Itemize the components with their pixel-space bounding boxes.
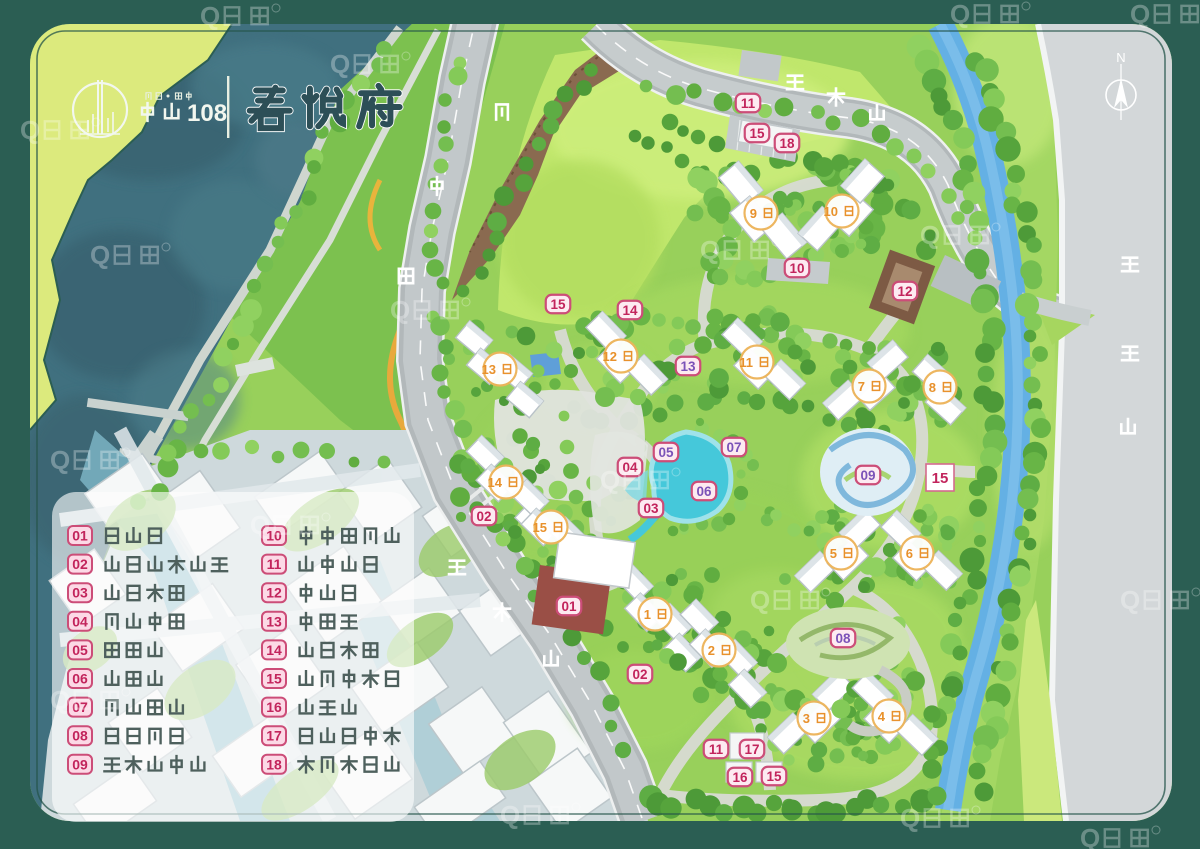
svg-text:9: 9 bbox=[750, 206, 757, 221]
svg-text:07: 07 bbox=[726, 440, 741, 455]
svg-text:Q: Q bbox=[500, 800, 520, 830]
svg-text:4: 4 bbox=[878, 709, 886, 724]
svg-text:Q: Q bbox=[1120, 585, 1140, 615]
svg-text:Q: Q bbox=[50, 445, 70, 475]
svg-text:01: 01 bbox=[561, 599, 577, 614]
svg-text:15: 15 bbox=[550, 297, 566, 312]
svg-text:03: 03 bbox=[72, 585, 88, 601]
svg-text:1: 1 bbox=[644, 607, 651, 622]
svg-text:N: N bbox=[1116, 50, 1125, 65]
svg-text:6: 6 bbox=[906, 546, 913, 561]
svg-text:14: 14 bbox=[622, 303, 638, 318]
svg-text:09: 09 bbox=[72, 756, 88, 772]
svg-text:Q: Q bbox=[1130, 0, 1150, 29]
svg-text:15: 15 bbox=[766, 769, 782, 784]
svg-text:8: 8 bbox=[929, 380, 936, 395]
svg-text:108: 108 bbox=[187, 100, 227, 127]
svg-text:11: 11 bbox=[741, 96, 756, 111]
svg-text:10: 10 bbox=[789, 261, 804, 276]
svg-text:Q: Q bbox=[200, 1, 220, 31]
svg-text:08: 08 bbox=[835, 631, 851, 646]
svg-text:Q: Q bbox=[920, 220, 940, 250]
svg-text:Q: Q bbox=[900, 803, 920, 833]
svg-text:Q: Q bbox=[90, 240, 110, 270]
svg-text:15: 15 bbox=[266, 671, 282, 687]
svg-text:12: 12 bbox=[603, 349, 617, 364]
svg-text:18: 18 bbox=[779, 136, 795, 151]
svg-text:09: 09 bbox=[860, 468, 875, 483]
svg-text:13: 13 bbox=[482, 362, 496, 377]
svg-text:11: 11 bbox=[267, 556, 282, 572]
svg-text:Q: Q bbox=[600, 465, 620, 495]
svg-text:15: 15 bbox=[533, 520, 547, 535]
svg-text:Q: Q bbox=[50, 685, 70, 715]
svg-text:16: 16 bbox=[266, 699, 282, 715]
svg-text:Q: Q bbox=[20, 115, 40, 145]
svg-text:18: 18 bbox=[266, 756, 282, 772]
svg-text:7: 7 bbox=[858, 379, 865, 394]
svg-text:04: 04 bbox=[72, 613, 88, 629]
svg-text:14: 14 bbox=[488, 475, 503, 490]
svg-text:10: 10 bbox=[824, 204, 838, 219]
svg-text:03: 03 bbox=[643, 501, 659, 516]
svg-text:01: 01 bbox=[72, 528, 88, 544]
svg-text:15: 15 bbox=[932, 470, 949, 487]
svg-text:2: 2 bbox=[708, 643, 715, 658]
svg-text:06: 06 bbox=[696, 484, 712, 499]
svg-text:3: 3 bbox=[803, 711, 810, 726]
svg-text:11: 11 bbox=[709, 742, 724, 757]
svg-text:12: 12 bbox=[266, 585, 282, 601]
svg-text:02: 02 bbox=[72, 556, 88, 572]
svg-text:05: 05 bbox=[72, 642, 88, 658]
svg-text:13: 13 bbox=[266, 613, 282, 629]
svg-text:06: 06 bbox=[72, 671, 88, 687]
svg-text:14: 14 bbox=[266, 642, 282, 658]
svg-text:15: 15 bbox=[749, 126, 765, 141]
svg-text:Q: Q bbox=[250, 510, 270, 540]
svg-text:11: 11 bbox=[739, 355, 753, 370]
svg-text:Q: Q bbox=[390, 295, 410, 325]
svg-text:Q: Q bbox=[950, 0, 970, 29]
svg-text:16: 16 bbox=[732, 770, 748, 785]
svg-text:Q: Q bbox=[700, 235, 720, 265]
svg-text:02: 02 bbox=[632, 667, 647, 682]
svg-text:Q: Q bbox=[330, 49, 350, 79]
svg-text:08: 08 bbox=[72, 728, 88, 744]
svg-text:02: 02 bbox=[476, 509, 491, 524]
svg-text:Q: Q bbox=[1080, 823, 1100, 849]
svg-text:05: 05 bbox=[658, 445, 674, 460]
svg-text:Q: Q bbox=[750, 585, 770, 615]
svg-text:17: 17 bbox=[266, 728, 282, 744]
svg-text:12: 12 bbox=[897, 284, 912, 299]
svg-text:13: 13 bbox=[680, 359, 696, 374]
svg-text:17: 17 bbox=[744, 742, 759, 757]
svg-text:5: 5 bbox=[830, 546, 837, 561]
